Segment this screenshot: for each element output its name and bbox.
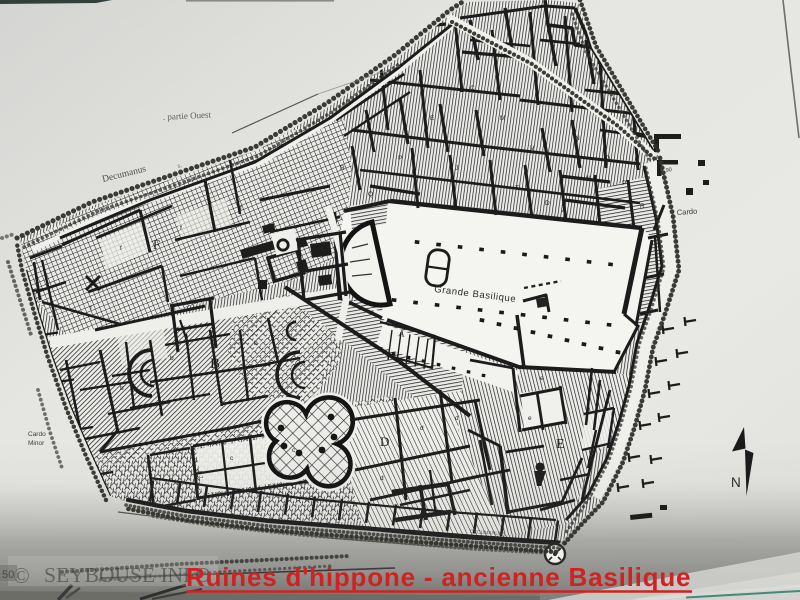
svg-text:P: P [398,155,402,162]
svg-text:N: N [575,135,580,142]
svg-text:d: d [420,425,424,432]
svg-text:f: f [120,245,122,252]
svg-text:d: d [455,415,459,422]
svg-text:N: N [586,175,591,182]
svg-text:50: 50 [2,569,14,581]
svg-text:e: e [528,415,532,422]
svg-text:Cardo: Cardo [28,431,46,438]
svg-text:A: A [562,207,567,214]
svg-text:Ruines d'hippone - ancienne Ba: Ruines d'hippone - ancienne Basilique [186,562,691,592]
svg-text:d: d [430,495,434,502]
svg-text:Minor: Minor [28,440,45,447]
svg-text:d: d [380,475,384,482]
svg-text:R: R [340,165,345,172]
svg-text:f: f [240,205,242,212]
svg-text:b: b [120,385,124,392]
svg-text:Cardo: Cardo [677,207,698,217]
svg-text:L: L [608,115,612,122]
svg-text:R: R [640,203,645,210]
svg-text:C: C [470,85,475,92]
svg-text:D: D [545,200,550,207]
svg-text:Q: Q [368,191,373,198]
svg-text:E: E [430,115,435,122]
svg-text:M: M [500,115,505,122]
svg-text:O: O [605,155,610,162]
svg-text:F: F [153,237,160,252]
svg-text:f: f [180,225,182,232]
svg-text:N: N [731,475,741,490]
svg-text:V: V [530,145,535,152]
svg-text:T: T [515,185,519,192]
svg-text:P: P [622,180,626,187]
svg-text:b: b [170,355,174,362]
svg-text:B: B [210,356,220,372]
svg-text:J: J [455,165,458,172]
svg-text:f: f [90,305,92,312]
svg-text:b: b [254,340,258,347]
svg-text:90: 90 [665,167,672,174]
svg-text:e: e [540,375,544,382]
